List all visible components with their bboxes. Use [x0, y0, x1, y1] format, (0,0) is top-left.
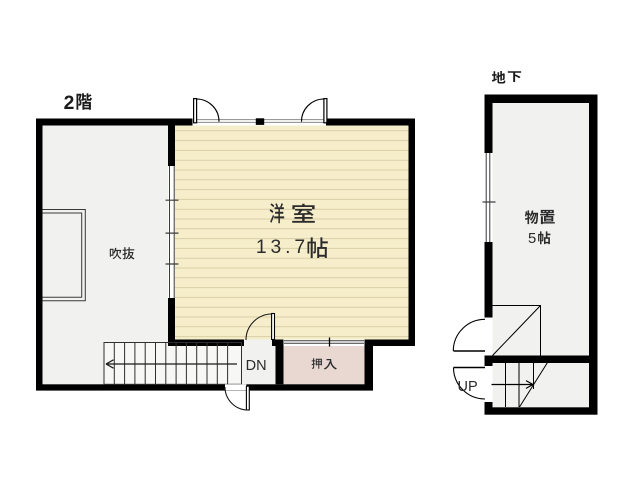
svg-text:2: 2: [64, 93, 75, 114]
svg-text:DN: DN: [246, 358, 267, 374]
svg-text:UP: UP: [458, 379, 478, 395]
svg-text:5: 5: [528, 231, 536, 247]
svg-text:13.7: 13.7: [256, 237, 309, 258]
